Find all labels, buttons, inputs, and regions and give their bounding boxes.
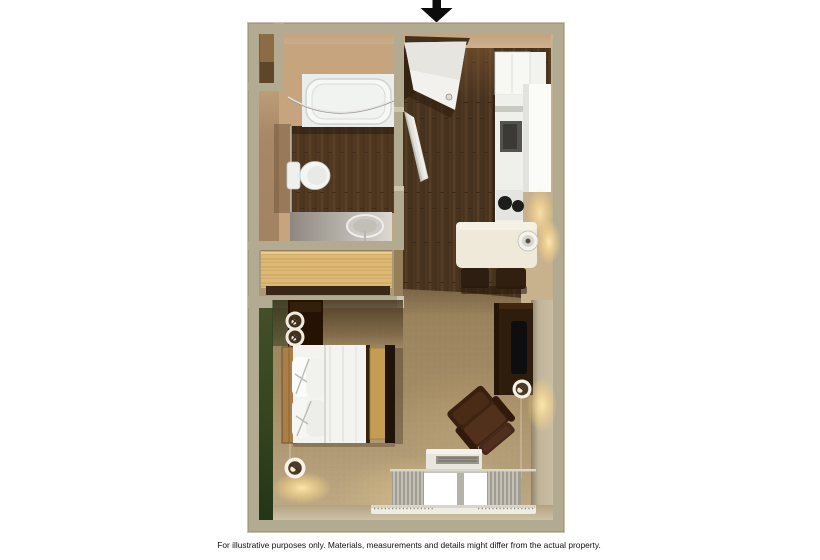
svg-text:For illustrative purposes only: For illustrative purposes only. Material… bbox=[217, 540, 601, 550]
